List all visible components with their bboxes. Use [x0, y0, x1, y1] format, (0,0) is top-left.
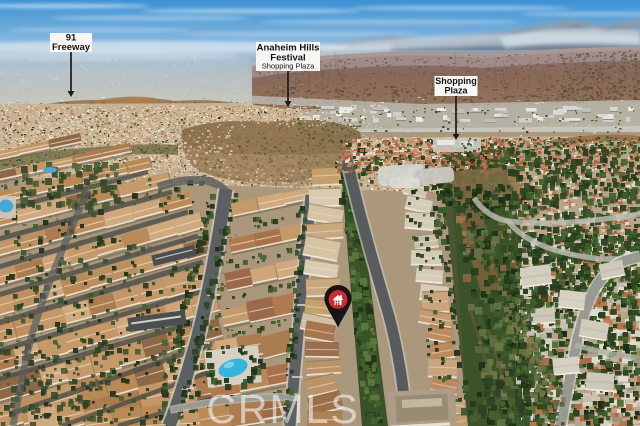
svg-text:Shopping Plaza: Shopping Plaza [262, 61, 315, 70]
svg-text:Plaza: Plaza [444, 86, 468, 96]
svg-text:Shopping: Shopping [435, 76, 477, 86]
svg-text:Freeway: Freeway [52, 42, 91, 53]
svg-text:CRMLS: CRMLS [206, 386, 360, 426]
